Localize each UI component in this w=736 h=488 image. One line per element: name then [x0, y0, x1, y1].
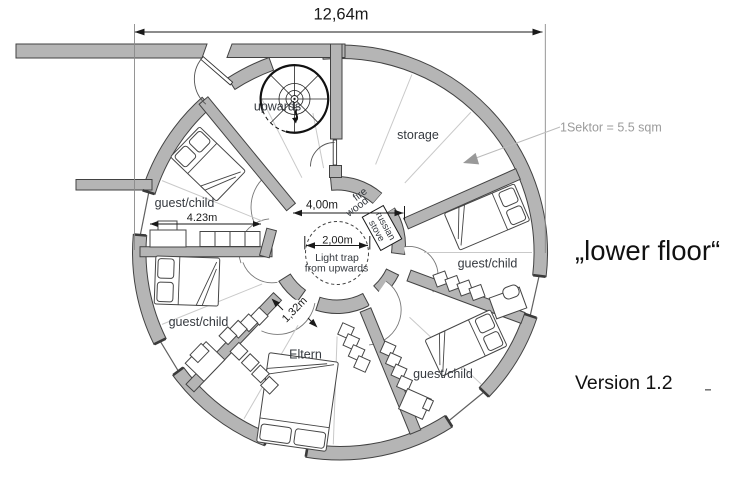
svg-text:4.23m: 4.23m — [187, 212, 218, 224]
svg-text:1Sektor = 5.5 sqm: 1Sektor = 5.5 sqm — [560, 121, 662, 135]
svg-text:Version 1.2: Version 1.2 — [575, 372, 673, 394]
svg-text:4,00m: 4,00m — [306, 200, 338, 212]
svg-text:„lower floor“: „lower floor“ — [575, 235, 720, 266]
svg-text:guest/child: guest/child — [169, 315, 229, 329]
svg-text:guest/child: guest/child — [458, 257, 518, 271]
svg-text:upwards: upwards — [254, 100, 301, 114]
svg-text:from upwards: from upwards — [305, 263, 369, 275]
svg-text:guest/child: guest/child — [155, 196, 215, 210]
svg-text:12,64m: 12,64m — [313, 6, 368, 24]
svg-text:storage: storage — [397, 128, 439, 142]
svg-text:guest/child: guest/child — [413, 367, 473, 381]
svg-text:2,00m: 2,00m — [322, 235, 353, 247]
svg-text:Eltern: Eltern — [289, 348, 322, 362]
